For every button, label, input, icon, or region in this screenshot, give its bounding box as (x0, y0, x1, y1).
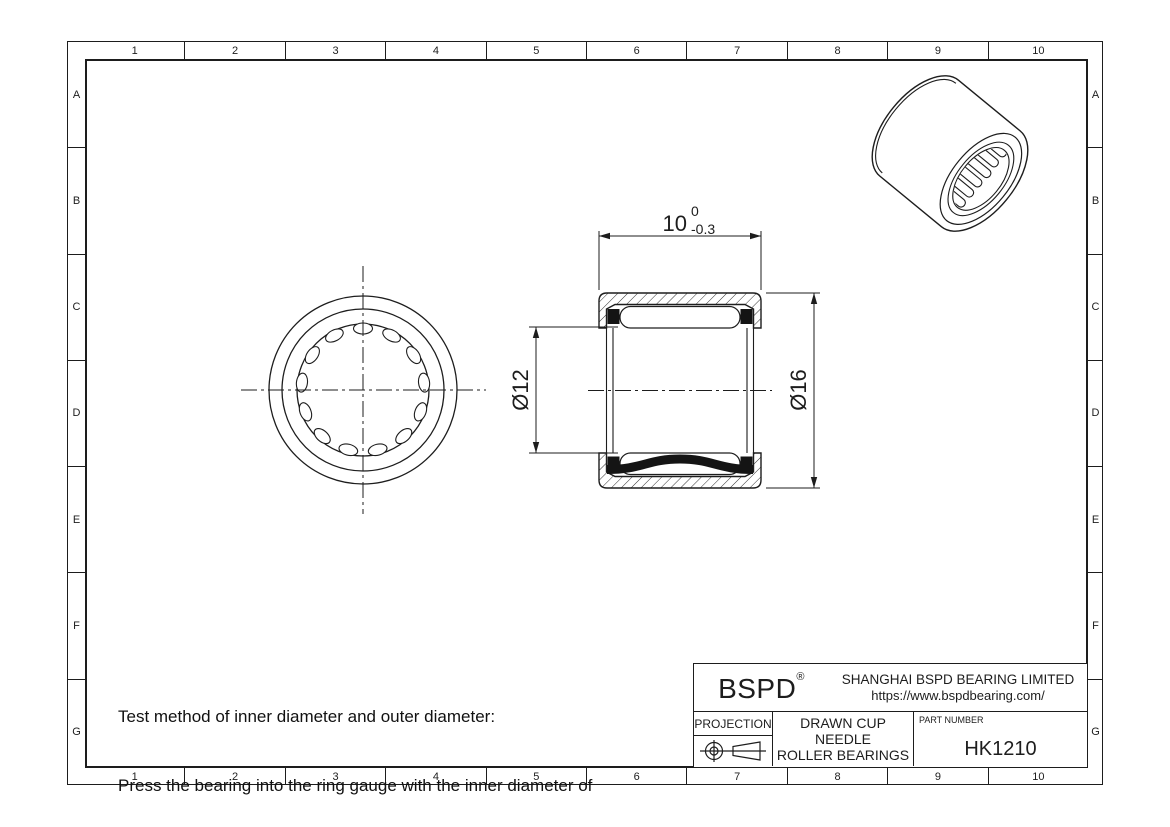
projection-symbol-area (694, 736, 772, 766)
dimension-width: 10 0 -0.3 (599, 203, 761, 290)
registered-trademark-mark: ® (796, 671, 805, 683)
part-number-value: HK1210 (914, 738, 1087, 761)
dim-outer-label: Ø16 (786, 369, 811, 411)
note-line: Test method of inner diameter and outer … (118, 705, 698, 728)
title-block-header-row: BSPD® SHANGHAI BSPD BEARING LIMITED http… (694, 664, 1087, 712)
dimension-outer: Ø16 (766, 293, 820, 488)
product-line: ROLLER BEARINGS (777, 747, 909, 763)
drawing-sheet: 1 2 3 4 5 6 7 8 9 10 1 2 3 4 5 6 7 8 9 1… (0, 0, 1170, 827)
dim-width-value: 10 (663, 211, 687, 236)
product-description: DRAWN CUP NEEDLE ROLLER BEARINGS (773, 712, 914, 766)
part-number-cell: PART NUMBER HK1210 (914, 712, 1087, 766)
dim-width-tol-upper: 0 (691, 203, 699, 219)
test-method-notes: Test method of inner diameter and outer … (118, 658, 698, 827)
company-info: SHANGHAI BSPD BEARING LIMITED https://ww… (829, 672, 1087, 703)
section-view (588, 293, 772, 488)
part-number-label: PART NUMBER (919, 715, 984, 725)
company-logo: BSPD® (694, 671, 829, 705)
dim-width-tol-lower: -0.3 (691, 221, 715, 237)
company-website: https://www.bspdbearing.com/ (829, 688, 1087, 703)
title-block: BSPD® SHANGHAI BSPD BEARING LIMITED http… (693, 663, 1088, 768)
company-name: SHANGHAI BSPD BEARING LIMITED (829, 672, 1087, 687)
projection-cell: PROJECTION (694, 712, 773, 766)
front-view-centerlines (241, 266, 486, 514)
needle-roller-top (620, 307, 740, 329)
projection-label: PROJECTION (694, 712, 772, 736)
first-angle-projection-icon (697, 737, 769, 765)
title-block-detail-row: PROJECTION DRAWN CUP NEEDLE R (694, 712, 1087, 766)
product-line: DRAWN CUP NEEDLE (773, 715, 913, 747)
iso-view (854, 59, 1046, 247)
dim-bore-label: Ø12 (508, 369, 533, 411)
note-line: Press the bearing into the ring gauge wi… (118, 774, 698, 797)
front-view (241, 266, 486, 514)
logo-text: BSPD (718, 673, 796, 704)
